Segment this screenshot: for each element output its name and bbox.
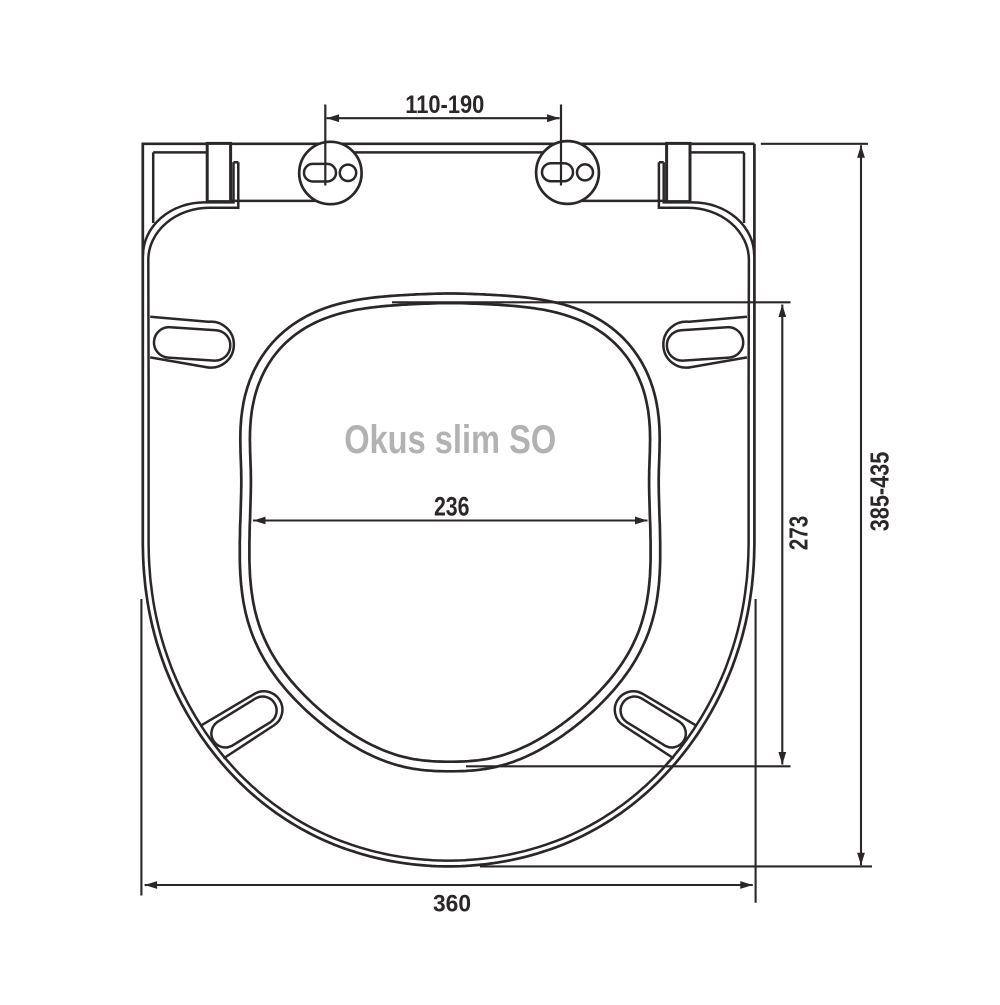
svg-text:273: 273	[783, 516, 813, 551]
svg-text:Okus slim SO: Okus slim SO	[344, 418, 556, 462]
svg-text:385-435: 385-435	[864, 452, 894, 532]
svg-text:360: 360	[433, 891, 471, 918]
svg-text:236: 236	[434, 492, 470, 522]
svg-text:110-190: 110-190	[405, 91, 484, 119]
